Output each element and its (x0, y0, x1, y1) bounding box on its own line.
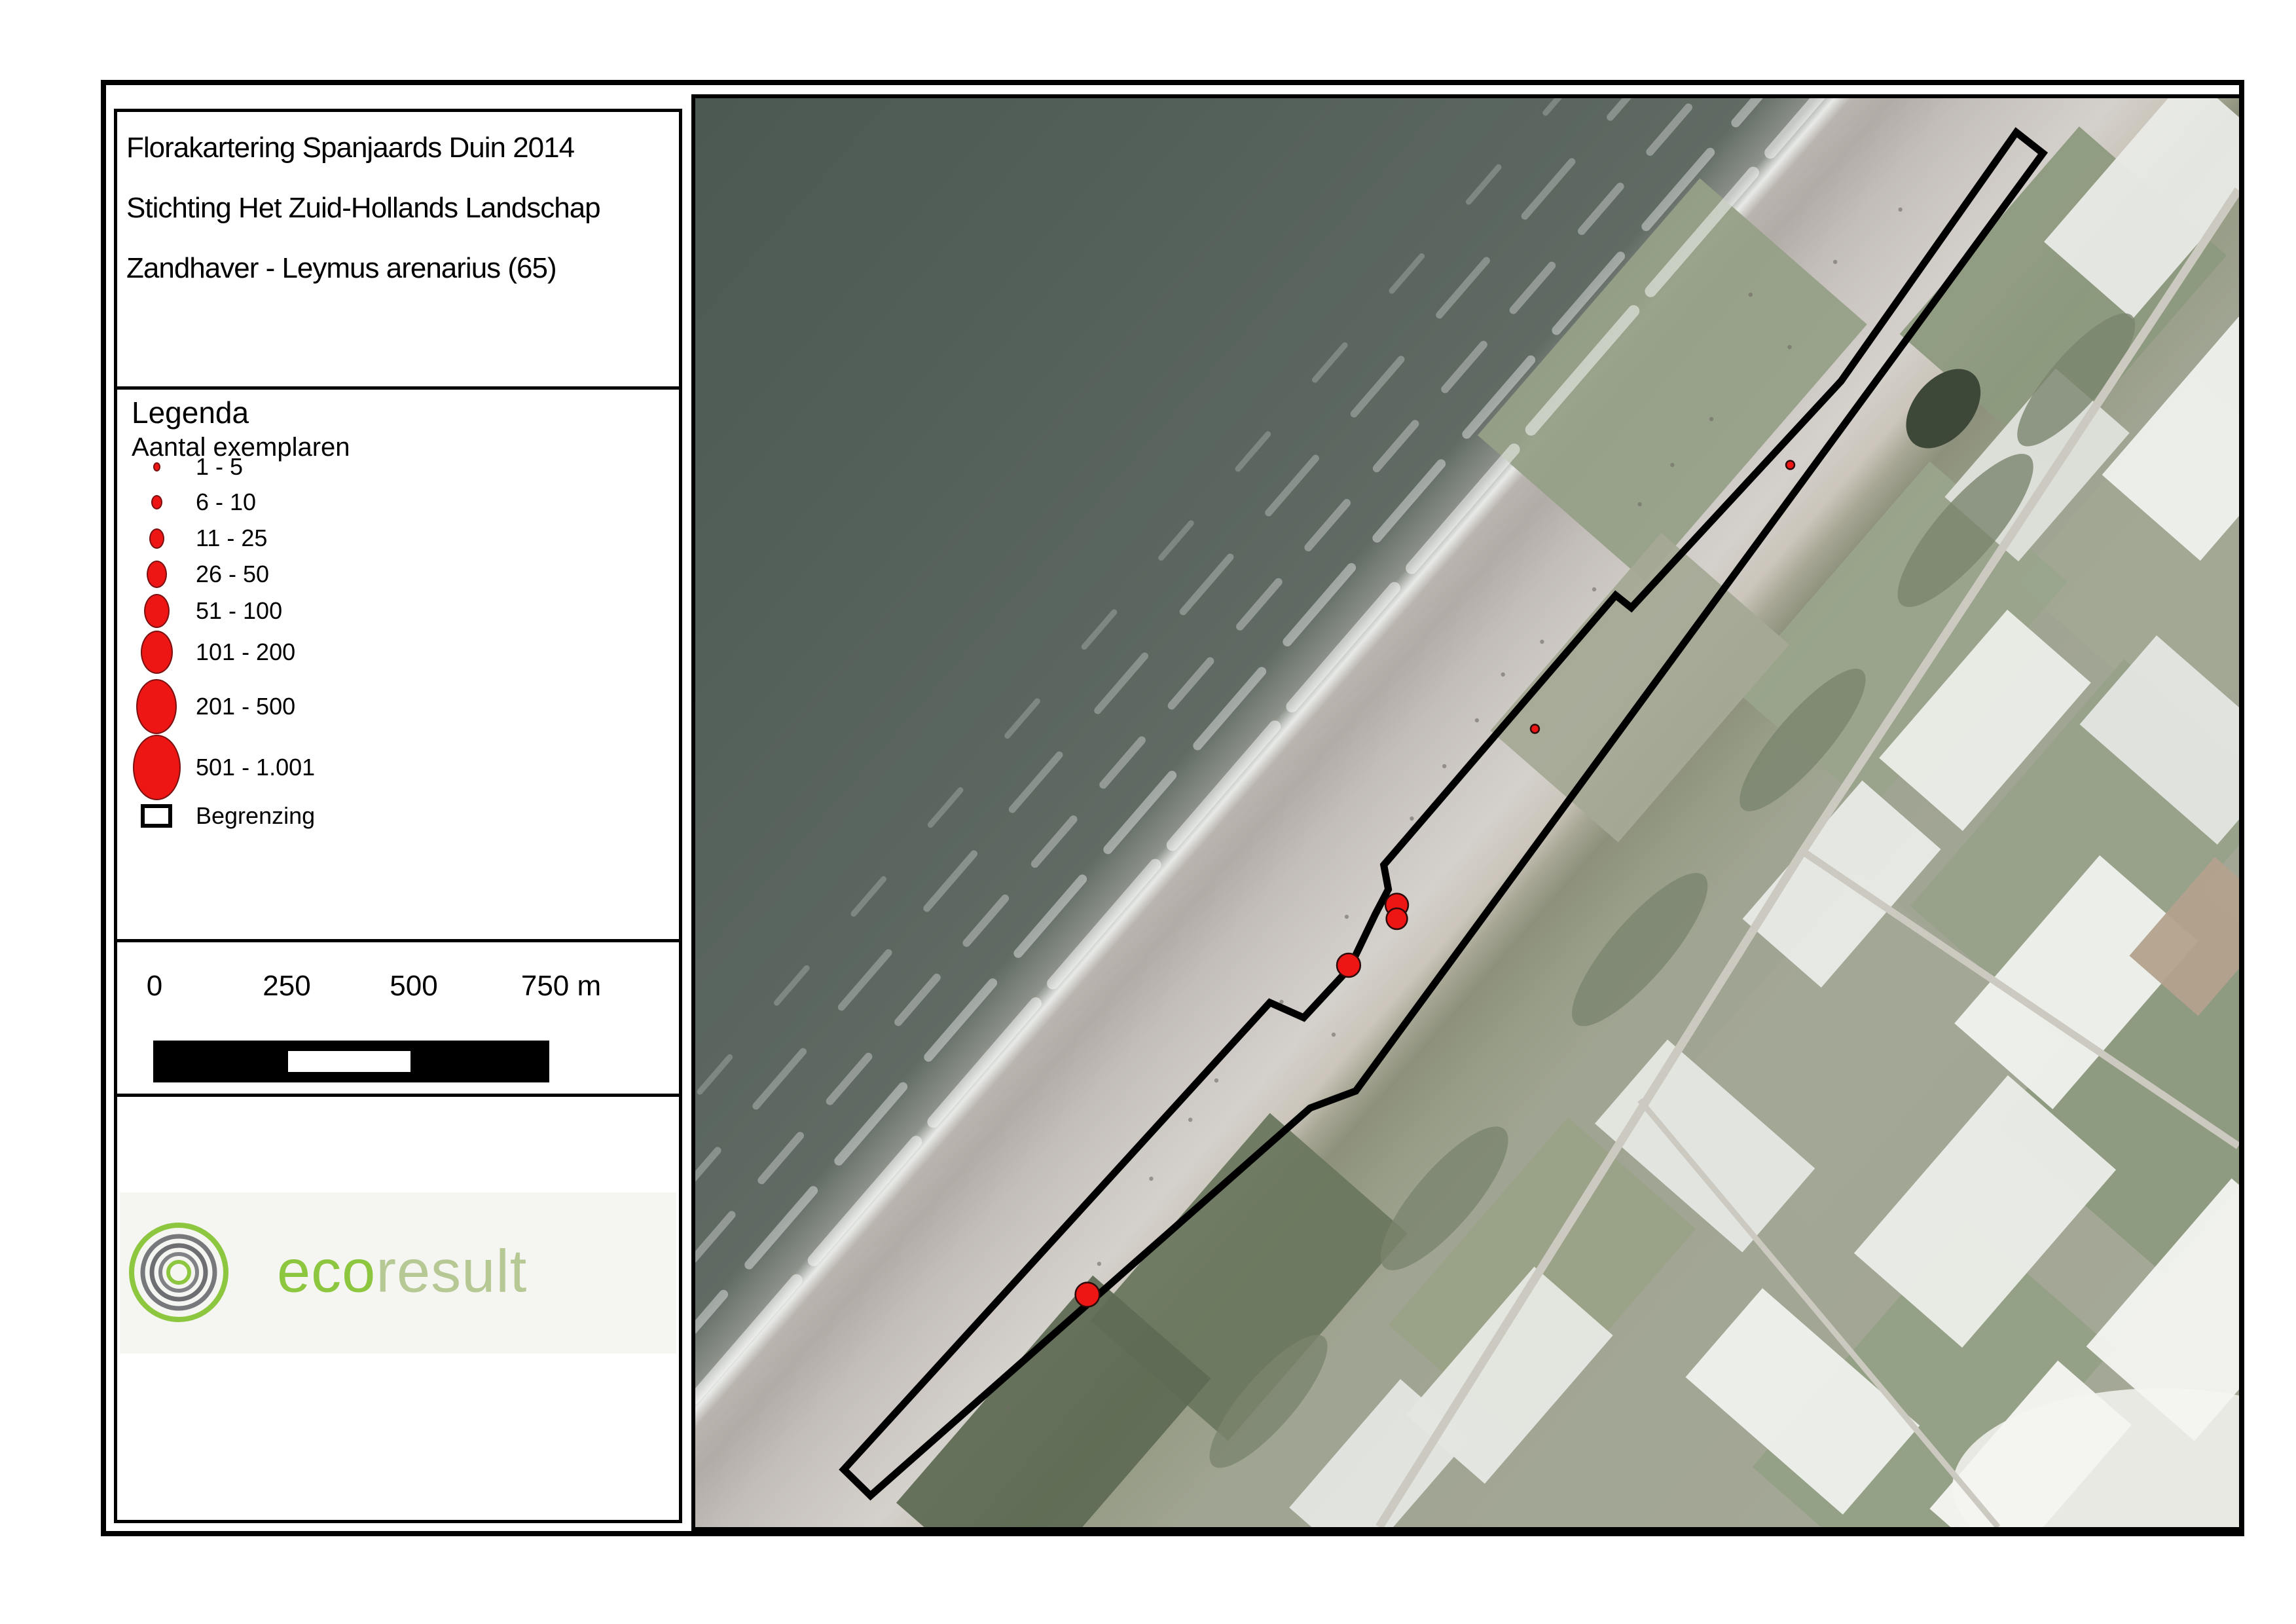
legend-row: 101 - 200 (117, 631, 679, 674)
beach-speckle (1501, 673, 1505, 676)
legend-class-label: 501 - 1.001 (196, 754, 315, 781)
logo-wordmark: ecoresult (277, 1237, 527, 1306)
beach-speckle (1214, 1079, 1218, 1082)
scalebar-middle-segment (288, 1051, 410, 1072)
legend-class-label: 11 - 25 (196, 525, 267, 552)
legend: Legenda Aantal exemplaren 1 - 56 - 1011 … (117, 390, 679, 942)
proportional-dot-icon (117, 679, 196, 734)
legend-row: 26 - 50 (117, 561, 679, 588)
observation-dot (1387, 908, 1408, 929)
beach-speckle (1709, 417, 1713, 421)
legend-row: 1 - 5 (117, 453, 679, 481)
proportional-dot-icon (117, 495, 196, 509)
beach-speckle (1475, 718, 1479, 722)
tree-rings-icon (123, 1217, 234, 1328)
beach-speckle (1345, 915, 1349, 919)
legend-row-boundary: Begrenzing (117, 802, 679, 830)
legend-class-label: 26 - 50 (196, 561, 269, 588)
boundary-swatch-icon (117, 804, 196, 828)
scalebar-tick-label: 750 m (521, 970, 601, 1003)
title-block: Florakartering Spanjaards Duin 2014 Stic… (117, 112, 679, 390)
observation-dot (1337, 953, 1360, 977)
beach-speckle (1787, 345, 1791, 349)
legend-row: 51 - 100 (117, 594, 679, 628)
beach-speckle (1898, 208, 1902, 212)
map-overlay (695, 98, 2239, 1527)
legend-heading: Legenda (132, 395, 249, 430)
proportional-dot-icon (117, 594, 196, 628)
map-client: Stichting Het Zuid-Hollands Landschap (126, 192, 600, 225)
logo-text-result: result (376, 1238, 527, 1304)
legend-row: 6 - 10 (117, 489, 679, 516)
logo-block: ecoresult (117, 1097, 679, 1517)
legend-row: 201 - 500 (117, 679, 679, 734)
scalebar-bar (153, 1041, 549, 1082)
beach-speckle (1592, 587, 1596, 591)
map-document-page: { "title_block": { "lines": [ "Florakart… (0, 0, 2296, 1624)
ecoresult-logo: ecoresult (120, 1192, 676, 1354)
legend-class-label: 6 - 10 (196, 489, 256, 516)
legend-class-label: 51 - 100 (196, 597, 282, 625)
map-species: Zandhaver - Leymus arenarius (65) (126, 252, 556, 285)
scalebar-tick-label: 500 (390, 970, 437, 1003)
legend-class-label: 1 - 5 (196, 453, 243, 481)
scalebar: 0250500750 m (117, 942, 679, 1097)
beach-speckle (1749, 293, 1753, 297)
proportional-dot-icon (117, 528, 196, 549)
scalebar-tick-label: 0 (147, 970, 162, 1003)
beach-speckle (1442, 764, 1446, 768)
logo-text-eco: eco (277, 1238, 376, 1304)
proportional-dot-icon (117, 462, 196, 471)
legend-boundary-label: Begrenzing (196, 802, 315, 830)
legend-row: 11 - 25 (117, 525, 679, 552)
beach-speckle (1006, 1406, 1010, 1410)
land-parcel (1478, 178, 1867, 581)
scalebar-tick-label: 250 (263, 970, 310, 1003)
map-canvas (691, 94, 2243, 1531)
observation-dot (1531, 725, 1539, 733)
beach-speckle (1188, 1118, 1192, 1122)
beach-speckle (1149, 1177, 1153, 1181)
beach-speckle (1410, 817, 1413, 821)
legend-class-label: 101 - 200 (196, 638, 295, 666)
observation-dot (1076, 1283, 1100, 1307)
legend-row: 501 - 1.001 (117, 735, 679, 800)
proportional-dot-icon (117, 631, 196, 674)
beach-speckle (1833, 260, 1837, 264)
legend-class-label: 201 - 500 (196, 693, 295, 720)
beach-speckle (1540, 640, 1544, 644)
map-title: Florakartering Spanjaards Duin 2014 (126, 132, 574, 164)
beach-speckle (1637, 502, 1641, 506)
map-sidebar: Florakartering Spanjaards Duin 2014 Stic… (114, 109, 682, 1523)
proportional-dot-icon (117, 561, 196, 588)
beach-speckle (1332, 1033, 1336, 1037)
beach-speckle (1670, 463, 1674, 467)
proportional-dot-icon (117, 735, 196, 800)
beach-speckle (1097, 1262, 1101, 1266)
observation-dot (1786, 461, 1795, 470)
